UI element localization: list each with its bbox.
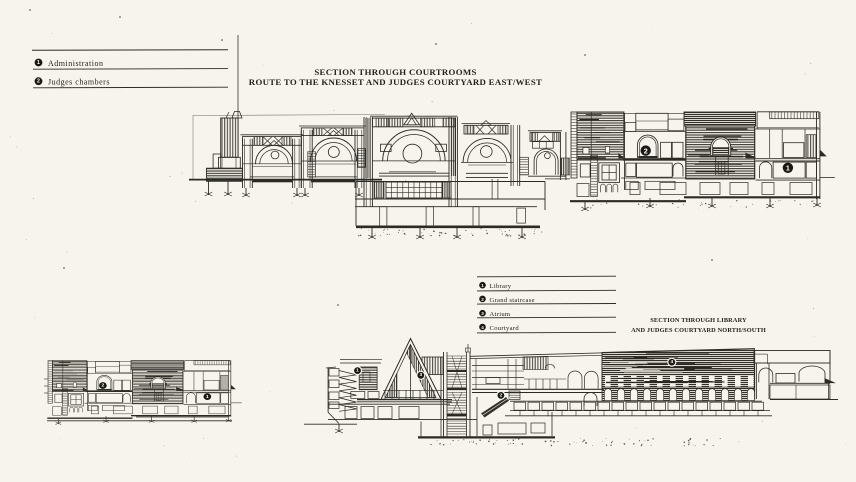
svg-text:1: 1 <box>37 60 40 66</box>
svg-text:2: 2 <box>37 79 40 85</box>
svg-text:3: 3 <box>419 372 422 378</box>
svg-text:1: 1 <box>786 164 790 173</box>
svg-text:3: 3 <box>481 311 484 316</box>
svg-text:1: 1 <box>481 283 484 288</box>
svg-text:Administration: Administration <box>48 59 103 68</box>
svg-text:1: 1 <box>356 368 359 374</box>
svg-text:Courtyard: Courtyard <box>490 325 520 332</box>
svg-text:2: 2 <box>644 147 648 156</box>
svg-text:4: 4 <box>670 359 673 365</box>
svg-text:ROUTE TO THE KNESSET AND JUDGE: ROUTE TO THE KNESSET AND JUDGES COURTYAR… <box>249 77 542 87</box>
svg-text:2: 2 <box>481 297 484 302</box>
svg-text:2: 2 <box>500 392 503 398</box>
svg-text:Library: Library <box>490 283 512 290</box>
svg-text:AND JUDGES COURTYARD NORTH/SOU: AND JUDGES COURTYARD NORTH/SOUTH <box>631 327 766 334</box>
svg-text:Grand staircase: Grand staircase <box>490 297 535 304</box>
svg-text:Atrium: Atrium <box>490 311 511 318</box>
svg-text:4: 4 <box>481 325 484 330</box>
svg-text:SECTION THROUGH COURTROOMS: SECTION THROUGH COURTROOMS <box>314 67 476 77</box>
svg-text:SECTION THROUGH LIBRARY: SECTION THROUGH LIBRARY <box>650 317 747 324</box>
svg-text:Judges chambers: Judges chambers <box>48 78 110 87</box>
